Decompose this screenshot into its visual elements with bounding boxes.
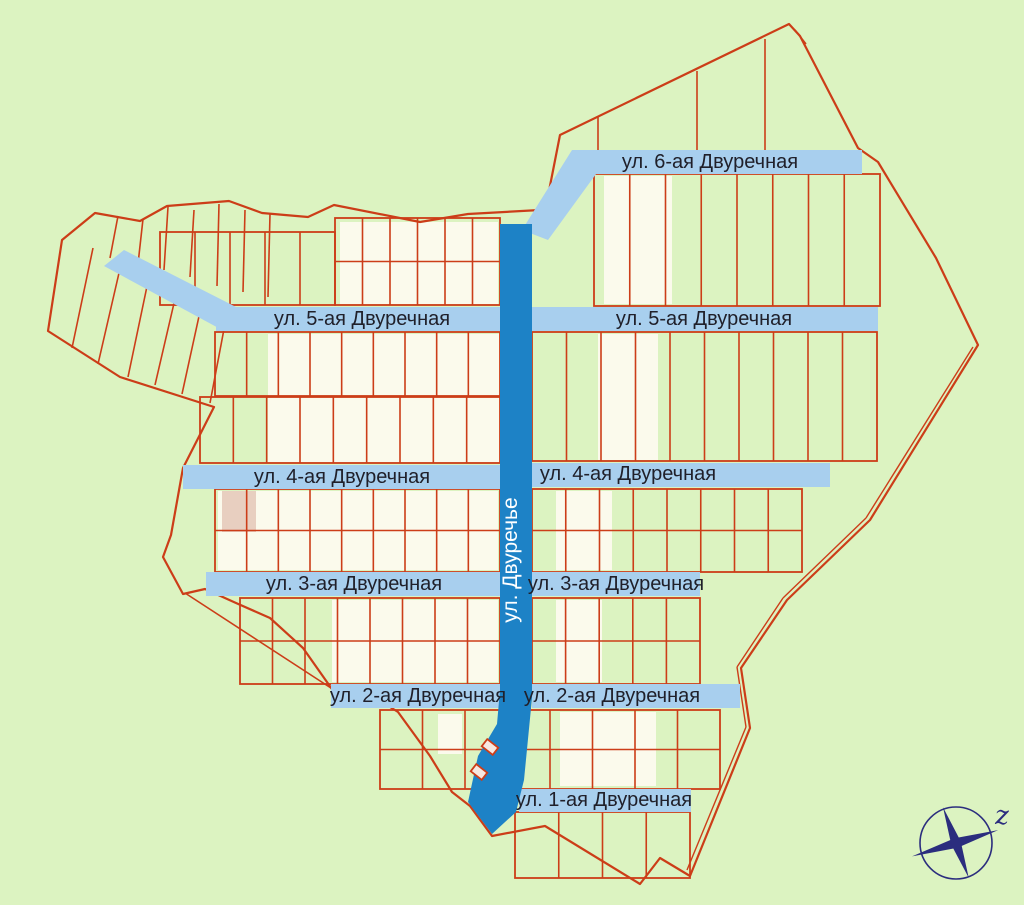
street-label: ул. 3-ая Двуречная: [266, 573, 442, 595]
compass-north-letter: z: [994, 801, 1009, 831]
street-label: ул. 4-ая Двуречная: [254, 466, 430, 488]
parcel-patch: [598, 334, 658, 460]
cadastral-map-svg: ул. 6-ая Двуречнаяул. 5-ая Двуречнаяул. …: [0, 0, 1024, 905]
street-label: ул. 3-ая Двуречная: [528, 573, 704, 595]
street-label: ул. 5-ая Двуречная: [274, 308, 450, 330]
street-label: ул. 4-ая Двуречная: [540, 463, 716, 485]
street-label: ул. 1-ая Двуречная: [516, 789, 692, 811]
parcel-patch: [268, 334, 500, 462]
parcel-patch: [420, 242, 498, 304]
map-canvas: ул. 6-ая Двуречнаяул. 5-ая Двуречнаяул. …: [0, 0, 1024, 905]
street-label: ул. 2-ая Двуречная: [330, 685, 506, 707]
parcel-patch: [604, 176, 672, 304]
street-label: ул. 2-ая Двуречная: [524, 685, 700, 707]
central-street-label: ул. Двуречье: [499, 497, 522, 622]
parcel-patch: [222, 491, 256, 532]
street-label: ул. 6-ая Двуречная: [622, 151, 798, 173]
parcel-patch: [438, 714, 462, 754]
street-label: ул. 5-ая Двуречная: [616, 308, 792, 330]
